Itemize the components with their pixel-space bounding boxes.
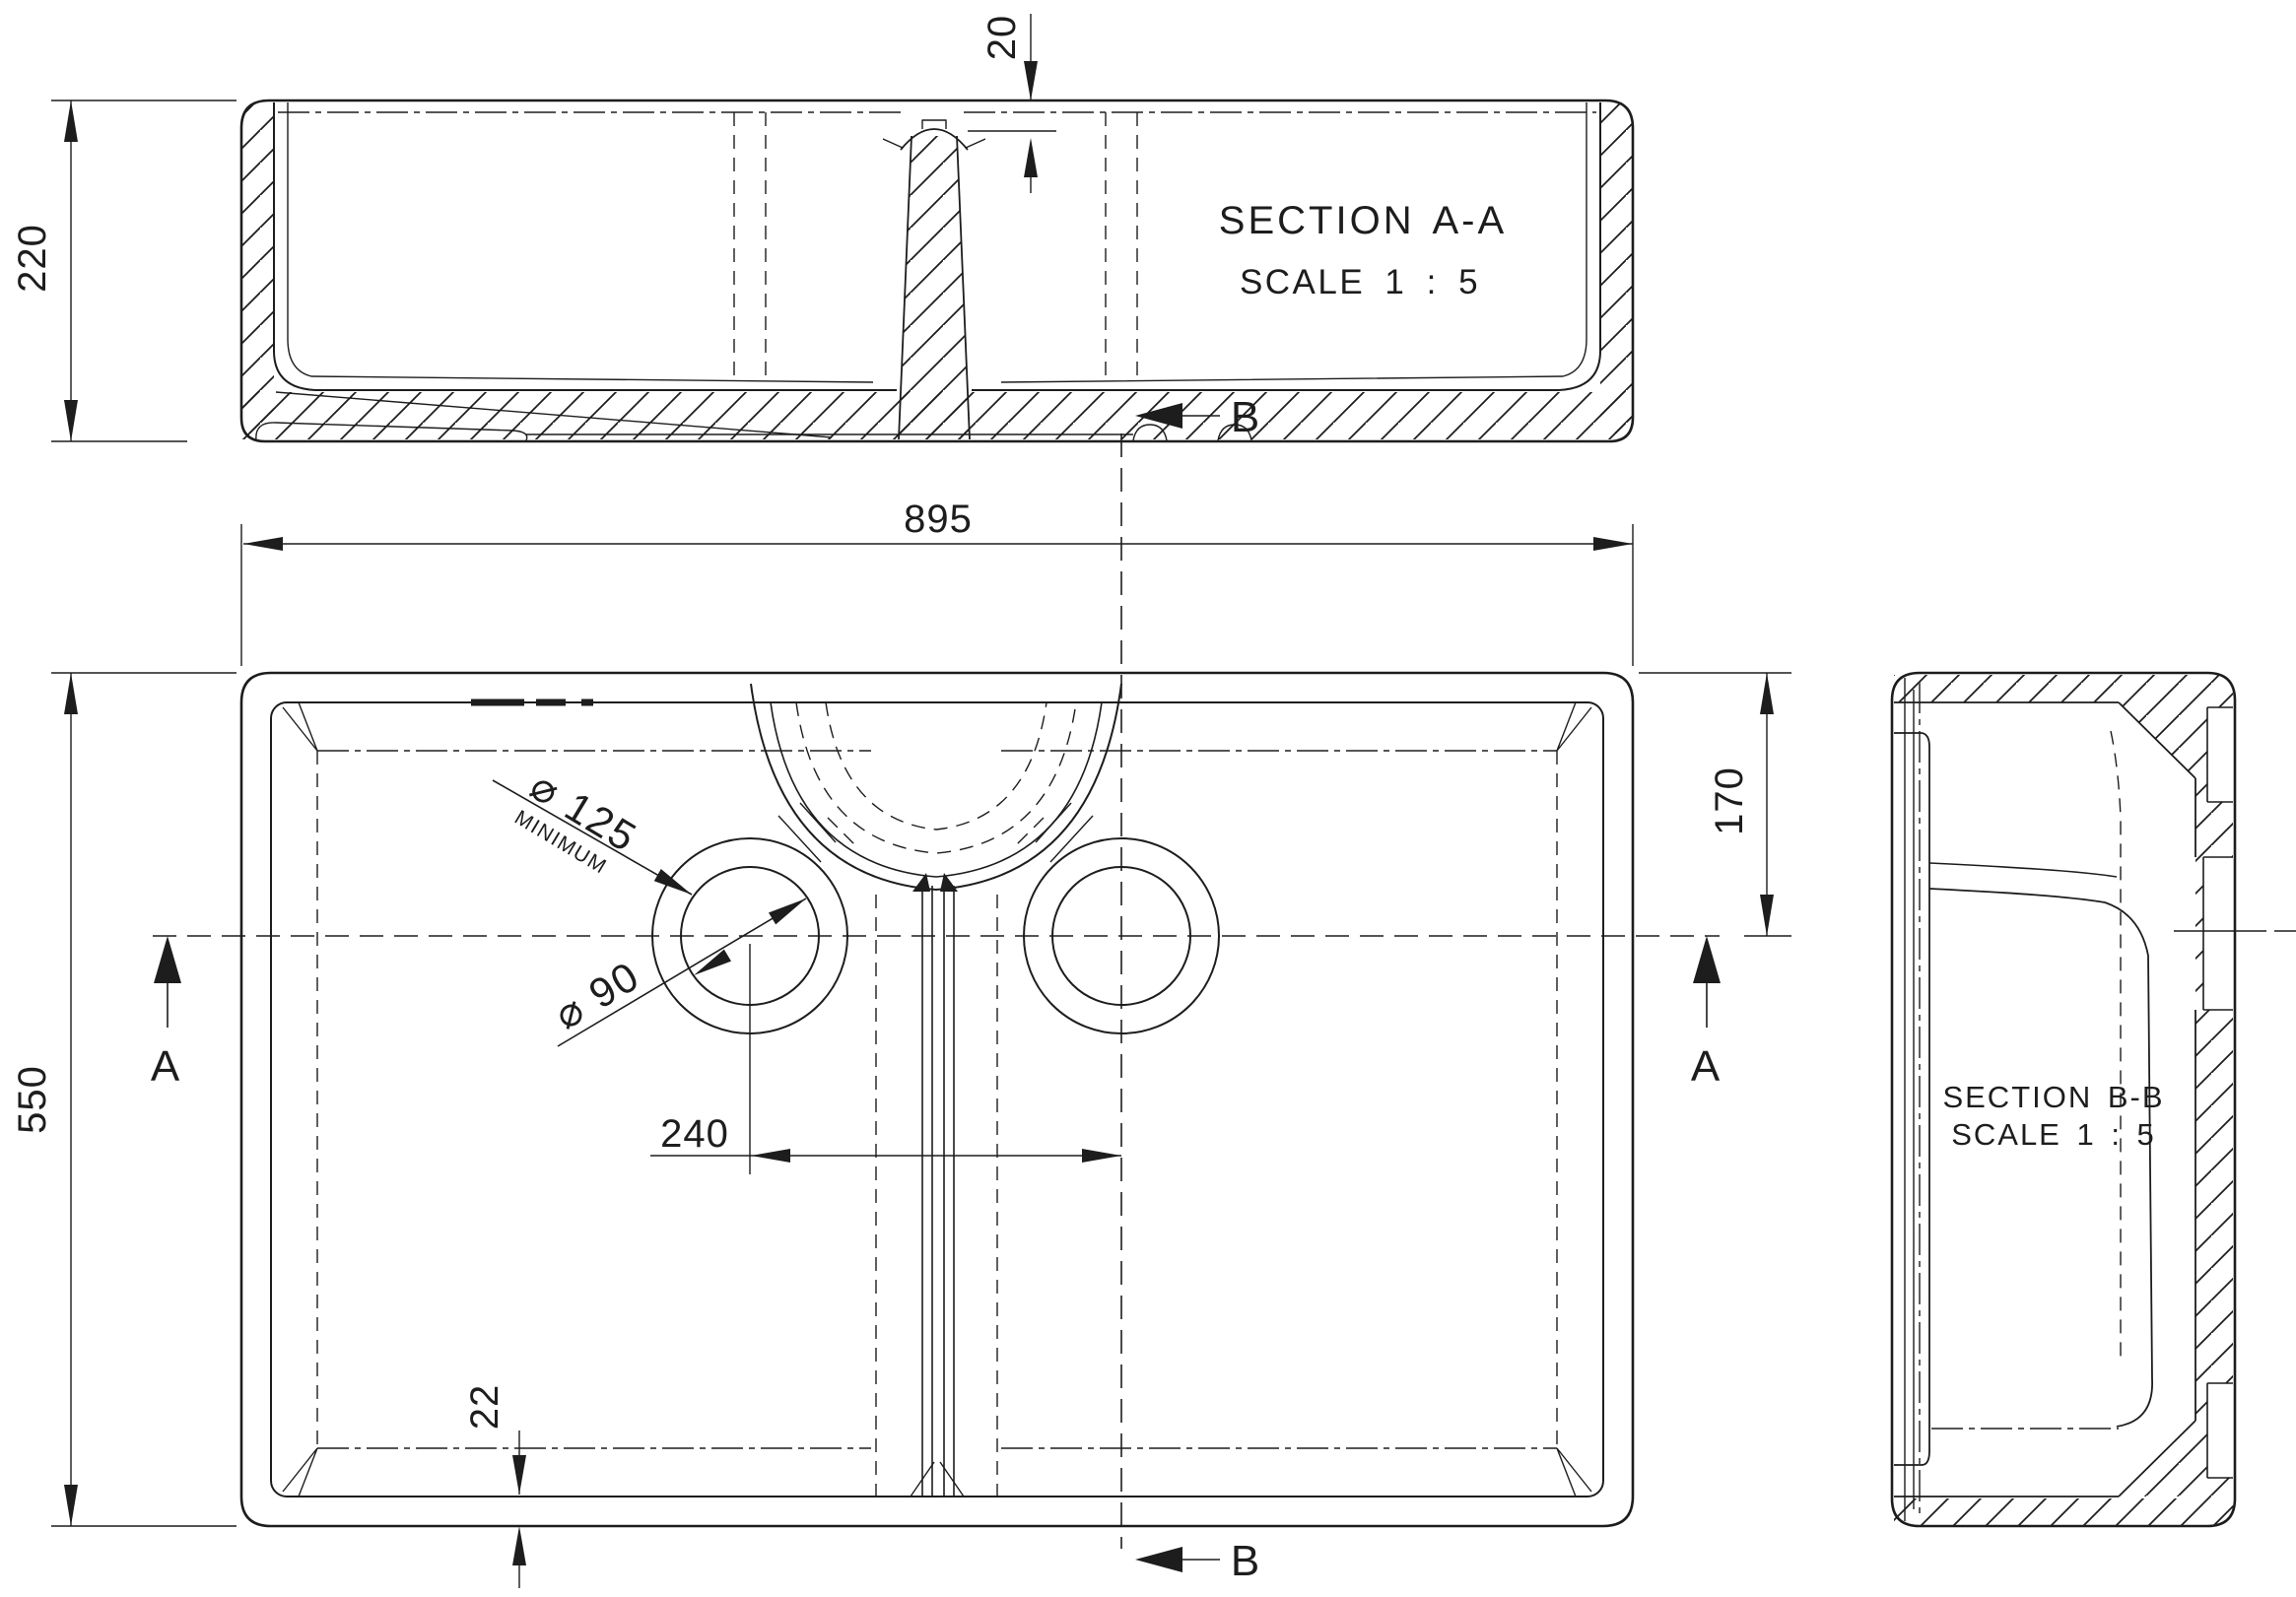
bowl-far-wall	[1929, 889, 2152, 1427]
dim-waste-centres: 240	[650, 1112, 1121, 1163]
section-mark-b-bottom: B	[1135, 1537, 1260, 1585]
dim-centerline-offset: 170	[1639, 673, 1791, 936]
section-aa-scale: SCALE 1 : 5	[1240, 263, 1480, 301]
dim-170-text: 170	[1708, 766, 1751, 835]
dim-550-text: 550	[11, 1065, 54, 1134]
section-mark-a-right: A	[1691, 936, 1721, 1091]
section-bb-title: SECTION B-B	[1942, 1080, 2164, 1114]
left-bowl-contour	[274, 102, 897, 390]
dim-waste-dia: ⌀ 90	[546, 898, 806, 1046]
bowl-rim-edge	[1894, 733, 1929, 1465]
plan-view	[153, 433, 1720, 1549]
section-mark-a-left: A	[151, 936, 181, 1091]
corner-chamfers	[283, 702, 1591, 1497]
plan-outline	[241, 673, 1633, 1526]
sink-technical-drawing: SECTION A-A SCALE 1 : 5 220 20 895	[0, 0, 2296, 1597]
dim-dia90-text: ⌀ 90	[546, 952, 647, 1038]
dim-22-text: 22	[463, 1384, 506, 1431]
dim-base-wall: 22	[463, 1384, 526, 1588]
engineering-drawing-canvas: SECTION A-A SCALE 1 : 5 220 20 895	[0, 0, 2296, 1597]
section-bb-scale: SCALE 1 : 5	[1951, 1117, 2156, 1152]
dim-895-text: 895	[904, 498, 973, 541]
section-aa-title: SECTION A-A	[1219, 199, 1507, 242]
hidden-wall-line	[2111, 731, 2121, 1360]
section-a-label-left: A	[151, 1042, 180, 1091]
rim-front-lines	[1905, 678, 1914, 1521]
dim-20-text: 20	[980, 15, 1024, 61]
section-b-label-top: B	[1231, 393, 1260, 441]
dim-overall-depth: 550	[11, 673, 236, 1526]
dim-min-cutout: ⌀ 125 MINIMUM	[493, 762, 692, 895]
section-a-label-right: A	[1691, 1042, 1721, 1091]
dim-240-text: 240	[660, 1112, 729, 1156]
right-bowl-contour	[972, 102, 1600, 390]
dim-overall-width: 895	[241, 498, 1633, 666]
bowl-floor-lines	[317, 751, 1557, 1448]
plan-inner-rim	[271, 702, 1603, 1497]
section-b-label-bottom: B	[1231, 1537, 1260, 1585]
plan-divider	[751, 684, 1121, 1497]
dim-220-text: 220	[11, 224, 54, 293]
dim-overall-height: 220	[11, 100, 236, 441]
dim-divider-step: 20	[968, 14, 1056, 193]
section-bb-view: SECTION B-B SCALE 1 : 5	[1892, 673, 2296, 1526]
divider-top-edge	[1929, 863, 2117, 877]
section-aa-view: SECTION A-A SCALE 1 : 5	[241, 100, 1633, 441]
right-bowl-front-edge	[1001, 102, 1587, 382]
left-bowl-front-edge	[288, 102, 873, 382]
